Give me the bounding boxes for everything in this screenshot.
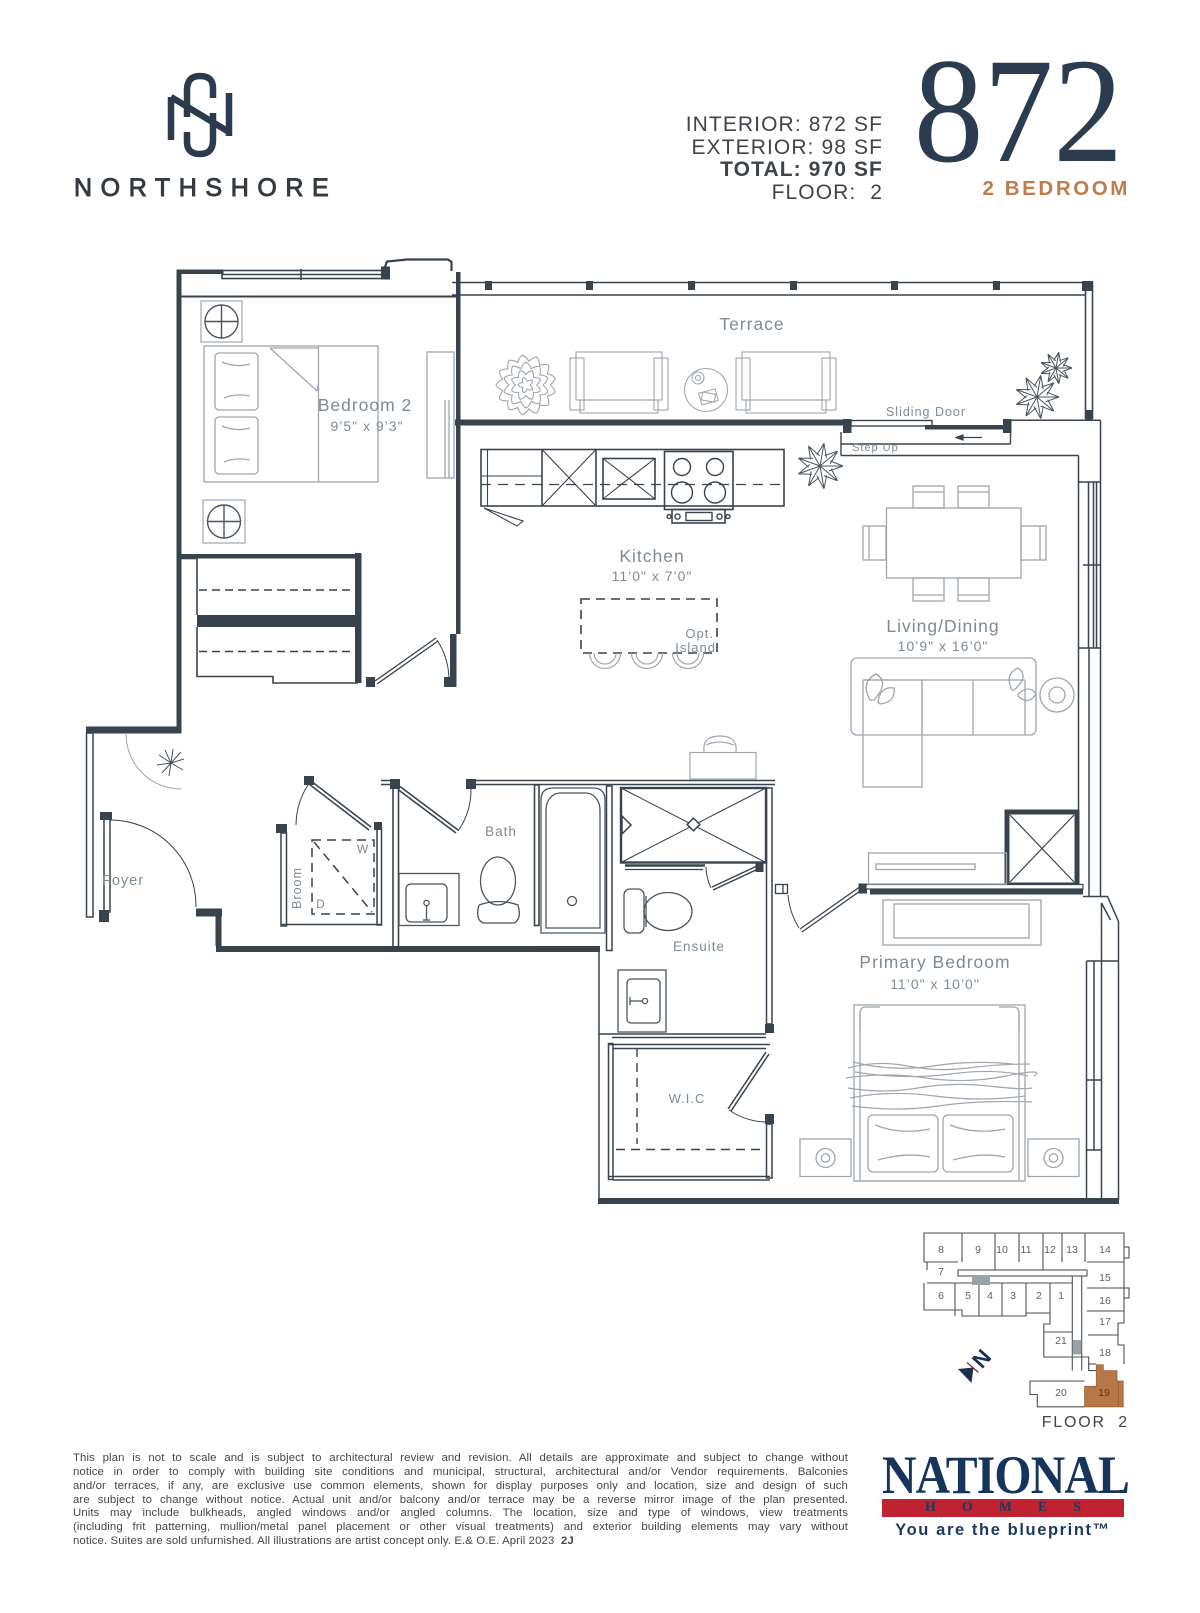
svg-text:17: 17 [1099, 1316, 1111, 1328]
svg-text:Broom: Broom [290, 867, 304, 909]
svg-text:Bedroom 2: Bedroom 2 [318, 395, 413, 415]
svg-text:11’0" x 10’0": 11’0" x 10’0" [890, 976, 980, 992]
svg-text:16: 16 [1099, 1295, 1111, 1307]
svg-text:W: W [357, 842, 369, 856]
svg-text:Foyer: Foyer [102, 873, 144, 889]
svg-text:13: 13 [1066, 1244, 1078, 1256]
svg-text:8: 8 [938, 1244, 944, 1256]
svg-text:21: 21 [1055, 1335, 1067, 1347]
svg-text:4: 4 [987, 1290, 993, 1302]
svg-text:Opt.: Opt. [685, 626, 714, 641]
svg-text:7: 7 [938, 1266, 944, 1278]
svg-text:Living/Dining: Living/Dining [886, 616, 999, 636]
svg-text:5: 5 [965, 1290, 971, 1302]
svg-text:Terrace: Terrace [719, 314, 784, 334]
svg-text:10’9" x 16’0": 10’9" x 16’0" [898, 638, 989, 654]
svg-text:10: 10 [996, 1244, 1008, 1256]
svg-text:2: 2 [1036, 1290, 1042, 1302]
svg-text:1: 1 [1058, 1290, 1064, 1302]
svg-text:20: 20 [1055, 1387, 1067, 1399]
svg-text:FLOOR 2: FLOOR 2 [1042, 1414, 1129, 1431]
svg-text:11’0" x 7’0": 11’0" x 7’0" [612, 568, 693, 584]
svg-text:W.I.C: W.I.C [669, 1091, 706, 1106]
svg-text:18: 18 [1099, 1347, 1111, 1359]
svg-text:Island: Island [675, 640, 716, 655]
svg-text:Primary Bedroom: Primary Bedroom [859, 952, 1010, 972]
svg-text:Step Up: Step Up [852, 442, 899, 454]
svg-text:D: D [316, 897, 326, 911]
svg-text:15: 15 [1099, 1272, 1111, 1284]
svg-text:3: 3 [1010, 1290, 1016, 1302]
svg-text:19: 19 [1098, 1387, 1110, 1399]
svg-text:12: 12 [1044, 1244, 1056, 1256]
svg-text:14: 14 [1099, 1244, 1111, 1256]
svg-text:9: 9 [975, 1244, 981, 1256]
svg-text:Bath: Bath [485, 824, 517, 839]
svg-text:11: 11 [1021, 1244, 1032, 1256]
svg-text:Ensuite: Ensuite [673, 939, 725, 954]
svg-text:9’5" x 9’3": 9’5" x 9’3" [330, 418, 403, 434]
svg-text:Kitchen: Kitchen [619, 546, 684, 566]
svg-text:6: 6 [938, 1290, 944, 1302]
svg-text:Sliding Door: Sliding Door [886, 405, 966, 419]
